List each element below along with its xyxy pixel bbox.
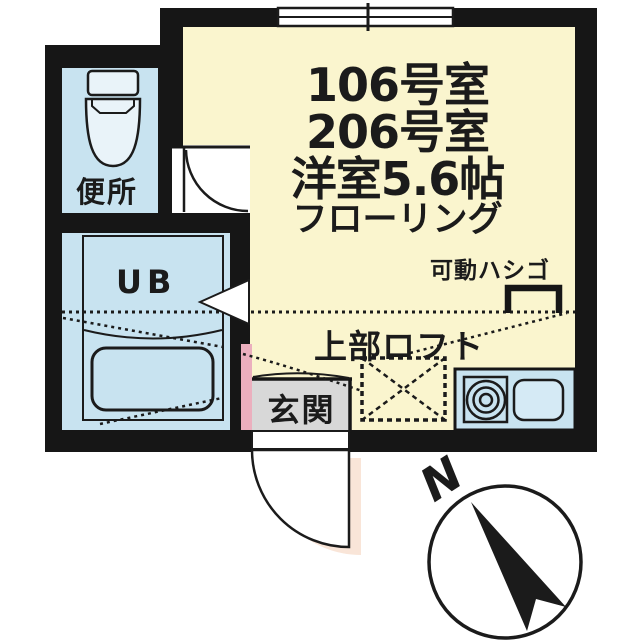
room-size: 洋室5.6帖 xyxy=(200,156,595,203)
floor-plan: 106号室 206号室 洋室5.6帖 フローリング 可動ハシゴ 上部ロフト 玄関… xyxy=(0,0,640,640)
sink-icon xyxy=(514,380,563,420)
wall-toilet-right xyxy=(158,68,172,213)
room-number-2: 206号室 xyxy=(200,109,595,156)
flooring-label: フローリング xyxy=(200,203,595,241)
toilet-label: 便所 xyxy=(76,169,138,211)
wall-left xyxy=(45,45,62,452)
unit-bath-label: UB xyxy=(116,263,176,301)
room-number-1: 106号室 xyxy=(200,62,595,109)
room-title: 106号室 206号室 洋室5.6帖 フローリング xyxy=(200,62,595,241)
front-door-arc xyxy=(252,450,349,547)
window-icon xyxy=(278,3,453,31)
compass-icon xyxy=(429,486,581,638)
upper-loft-label: 上部ロフト xyxy=(314,320,484,368)
front-door-swing xyxy=(252,450,361,555)
entrance-label: 玄関 xyxy=(252,385,351,431)
movable-ladder-label: 可動ハシゴ xyxy=(430,251,550,285)
wall-toilet-top xyxy=(45,45,167,68)
toilet-icon xyxy=(86,71,140,166)
front-door-leaf xyxy=(252,431,349,449)
bathtub xyxy=(92,348,213,410)
